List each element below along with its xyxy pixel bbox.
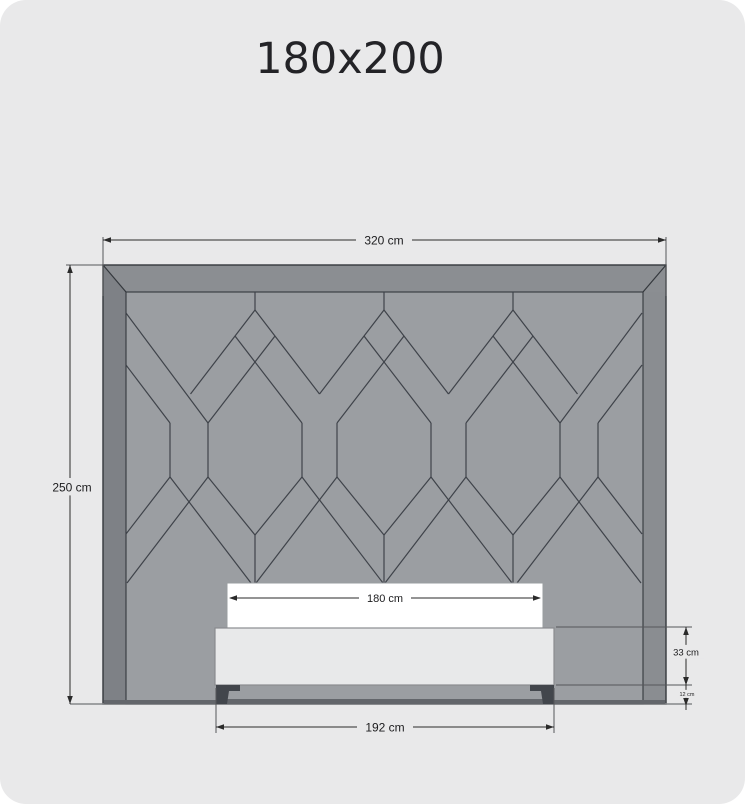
- panel-frame-left: [103, 292, 126, 704]
- dimension-arrow-icon: [67, 696, 73, 704]
- dimension-arrow-icon: [67, 265, 73, 273]
- dimension-label: 12 cm: [680, 692, 695, 698]
- bed-frame: [215, 628, 554, 685]
- under-bed-shadow: [217, 699, 553, 703]
- dimension-arrow-icon: [683, 677, 689, 685]
- dimension-arrow-icon: [546, 724, 554, 730]
- panel-frame-top: [103, 265, 666, 292]
- dimension-arrow-icon: [658, 237, 666, 243]
- dimension-label: 180 cm: [367, 593, 403, 605]
- dimension-label: 33 cm: [673, 647, 699, 658]
- dimension-height-total: 250 cm: [44, 265, 104, 704]
- dimension-arrow-icon: [683, 627, 689, 635]
- dimension-label: 320 cm: [364, 233, 403, 247]
- dimension-arrow-icon: [103, 237, 111, 243]
- dimension-label: 250 cm: [52, 480, 91, 494]
- dimension-arrow-icon: [216, 724, 224, 730]
- panel-frame-right: [643, 292, 666, 704]
- headboard-diagram: 320 cm250 cm180 cm192 cm33 cm12 cm: [0, 0, 745, 804]
- spec-sheet-card: 180x200 320 cm250 cm180 cm192 cm33 cm12 …: [0, 0, 745, 804]
- dimension-label: 192 cm: [365, 720, 404, 734]
